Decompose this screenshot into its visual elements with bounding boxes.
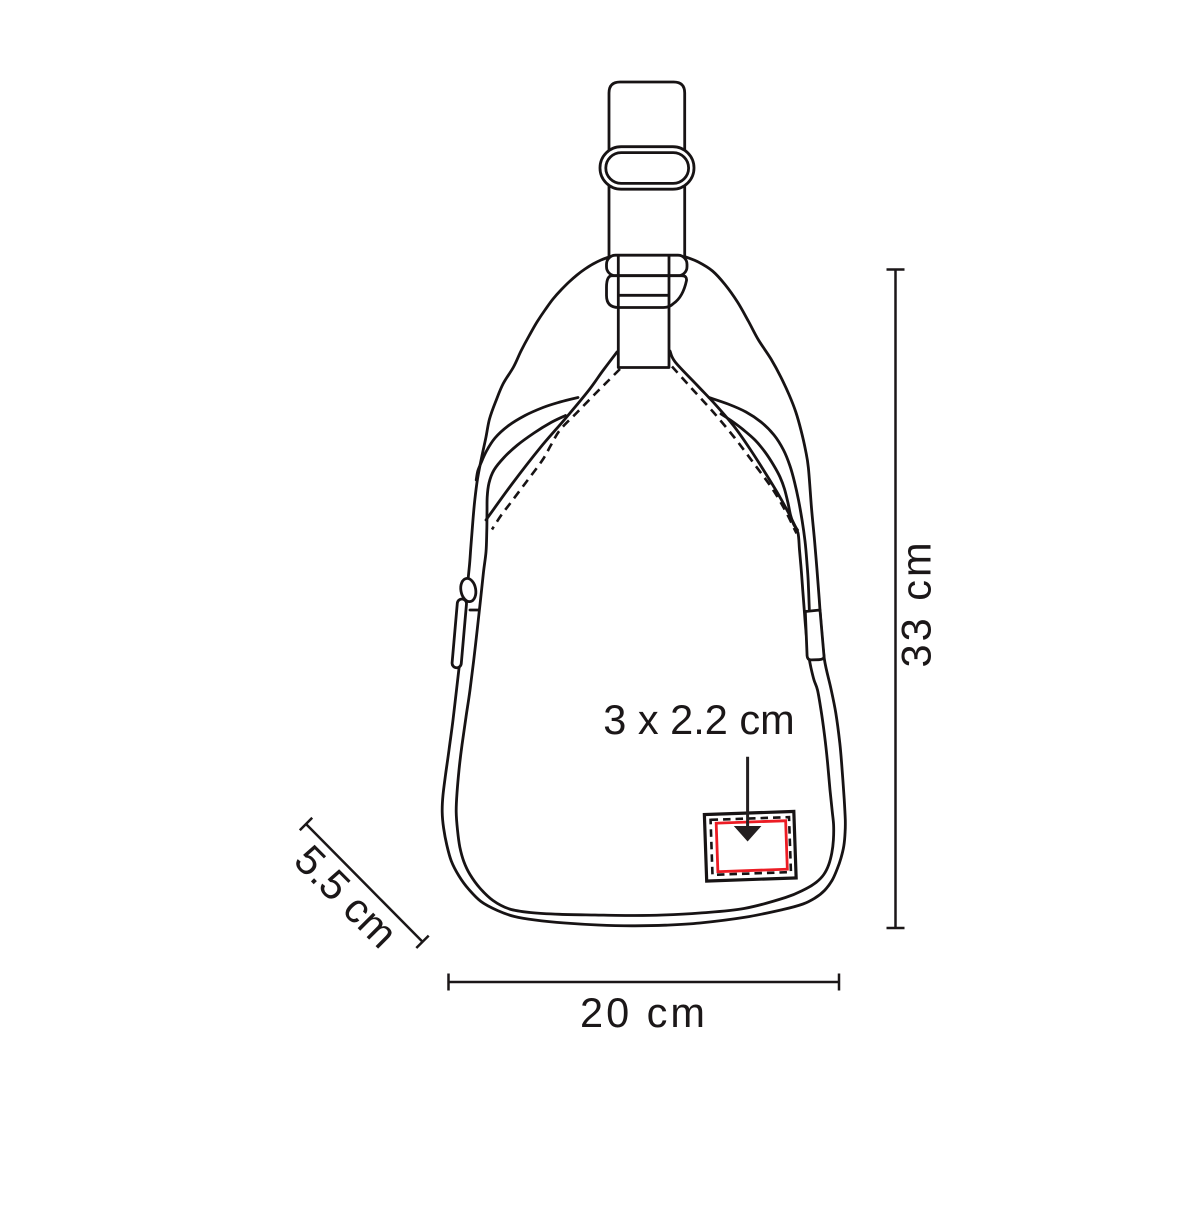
svg-text:33 cm: 33 cm <box>893 539 940 667</box>
svg-text:20 cm: 20 cm <box>580 989 708 1036</box>
svg-text:3 x 2.2 cm: 3 x 2.2 cm <box>603 696 794 743</box>
